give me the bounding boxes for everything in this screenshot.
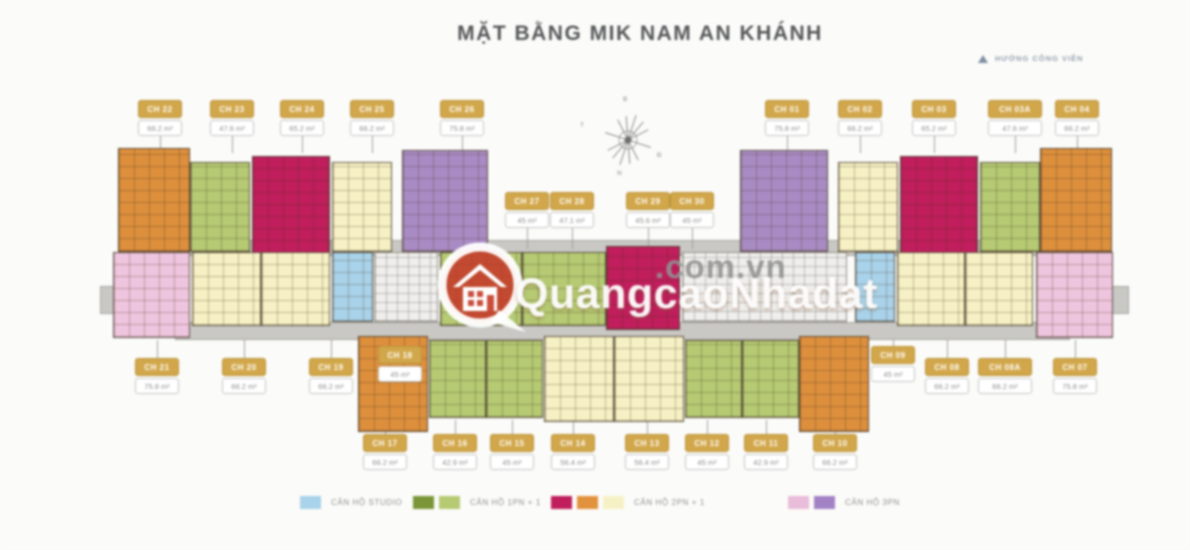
- leader-line: [572, 228, 573, 249]
- unit-ch01: [740, 150, 828, 252]
- unit-ch21: [113, 252, 190, 338]
- unit-id-tag: CH 14: [551, 434, 595, 452]
- leader-line: [512, 420, 513, 434]
- unit-area-value: 66.2 m²: [978, 378, 1032, 394]
- unit-area-value: 66.2 m²: [309, 378, 353, 394]
- unit-area-value: 65.2 m²: [280, 120, 324, 136]
- unit-area-value: 75.8 m²: [135, 378, 179, 394]
- unit-label-ch-12: CH 1245 m²: [685, 434, 729, 470]
- unit-ch15: [486, 340, 543, 418]
- unit-id-tag: CH 19: [309, 358, 353, 376]
- unit-label-ch-22: CH 2266.2 m²: [138, 100, 182, 136]
- unit-id-tag: CH 02: [838, 100, 882, 118]
- unit-label-ch-01: CH 0175.8 m²: [765, 100, 809, 136]
- unit-area-value: 66.2 m²: [1055, 120, 1099, 136]
- unit-ch10: [799, 336, 869, 432]
- legend-item-2: CĂN HỘ 1PN + 1: [413, 496, 541, 509]
- unit-id-tag: CH 16: [433, 434, 477, 452]
- unit-label-ch-07: CH 0775.8 m²: [1053, 358, 1097, 394]
- unit-label-ch-02: CH 0266.2 m²: [838, 100, 882, 136]
- unit-area-value: 47.6 m²: [210, 120, 254, 136]
- leader-line: [1005, 340, 1006, 358]
- unit-label-ch-28: CH 2847.1 m²: [550, 192, 594, 228]
- unit-area-value: 45 m²: [685, 454, 729, 470]
- unit-area-value: 45 m²: [871, 366, 915, 382]
- unit-area-value: 66.2 m²: [925, 378, 969, 394]
- unit-id-tag: CH 08: [925, 358, 969, 376]
- leader-line: [934, 136, 935, 153]
- unit-area-value: 66.2 m²: [838, 120, 882, 136]
- leader-line: [1075, 340, 1076, 358]
- legend-label: CĂN HỘ STUDIO: [331, 498, 402, 507]
- unit-area-value: 66.2 m²: [350, 120, 394, 136]
- leader-line: [573, 420, 574, 434]
- unit-label-ch-03a: CH 03A47.6 m²: [988, 100, 1042, 136]
- unit-id-tag: CH 29: [626, 192, 670, 210]
- unit-id-tag: CH 09: [871, 346, 915, 364]
- unit-label-ch-27: CH 2745 m²: [505, 192, 549, 228]
- unit-label-ch-04: CH 0466.2 m²: [1055, 100, 1099, 136]
- compass-west-label: T: [580, 122, 584, 129]
- unit-id-tag: CH 03A: [988, 100, 1042, 118]
- unit-ch18-studio: [332, 252, 373, 322]
- unit-label-ch-16: CH 1642.9 m²: [433, 434, 477, 470]
- unit-ch16: [429, 340, 486, 418]
- unit-ch08a: [965, 252, 1033, 326]
- legend-label: CĂN HỘ 3PN: [845, 498, 900, 507]
- unit-id-tag: CH 04: [1055, 100, 1099, 118]
- unit-id-tag: CH 21: [135, 358, 179, 376]
- unit-label-ch-26: CH 2675.8 m²: [440, 100, 484, 136]
- unit-label-ch-18: CH 1845 m²: [378, 346, 422, 382]
- unit-id-tag: CH 22: [138, 100, 182, 118]
- unit-ch23: [190, 162, 250, 252]
- leader-line: [860, 136, 861, 153]
- unit-area-value: 75.8 m²: [1053, 378, 1097, 394]
- unit-area-value: 45 m²: [490, 454, 534, 470]
- legend-swatch: [551, 496, 572, 509]
- floorplan-canvas: MẶT BẰNG MIK NAM AN KHÁNH HƯỚNG CÔNG VIÊ…: [0, 0, 1190, 550]
- unit-label-ch-15: CH 1545 m²: [490, 434, 534, 470]
- unit-id-tag: CH 08A: [978, 358, 1032, 376]
- leader-line: [947, 340, 948, 358]
- unit-area-value: 75.8 m²: [440, 120, 484, 136]
- unit-label-ch-09: CH 0945 m²: [871, 346, 915, 382]
- unit-id-tag: CH 10: [813, 434, 857, 452]
- unit-label-ch-08: CH 0866.2 m²: [925, 358, 969, 394]
- legend-swatch: [814, 496, 835, 509]
- unit-ch02: [838, 162, 898, 252]
- unit-area-value: 45.6 m²: [626, 212, 670, 228]
- unit-id-tag: CH 15: [490, 434, 534, 452]
- unit-ch14: [544, 336, 614, 422]
- unit-area-value: 65.2 m²: [912, 120, 956, 136]
- unit-ch03: [900, 156, 978, 254]
- unit-id-tag: CH 07: [1053, 358, 1097, 376]
- unit-label-ch-10: CH 1066.2 m²: [813, 434, 857, 470]
- legend-item-1: CĂN HỘ STUDIO: [300, 496, 402, 509]
- leader-line: [302, 136, 303, 153]
- leader-line: [455, 420, 456, 434]
- compass-south-label: N: [617, 170, 622, 177]
- unit-label-ch-21: CH 2175.8 m²: [135, 358, 179, 394]
- unit-ch25: [332, 162, 392, 252]
- unit-id-tag: CH 26: [440, 100, 484, 118]
- legend-label: CĂN HỘ 1PN + 1: [470, 498, 541, 507]
- unit-id-tag: CH 20: [222, 358, 266, 376]
- unit-id-tag: CH 03: [912, 100, 956, 118]
- unit-area-value: 42.9 m²: [744, 454, 788, 470]
- unit-area-value: 66.2 m²: [138, 120, 182, 136]
- unit-ch11: [742, 340, 799, 418]
- unit-id-tag: CH 18: [378, 346, 422, 364]
- unit-id-tag: CH 17: [363, 434, 407, 452]
- unit-id-tag: CH 24: [280, 100, 324, 118]
- unit-area-value: 42.9 m²: [433, 454, 477, 470]
- unit-area-value: 56.4 m²: [625, 454, 669, 470]
- unit-ch19: [261, 252, 330, 326]
- unit-label-ch-20: CH 2066.2 m²: [222, 358, 266, 394]
- park-direction-note: HƯỚNG CÔNG VIÊN: [978, 54, 1083, 63]
- unit-label-ch-30: CH 3045 m²: [670, 192, 714, 228]
- leader-line: [372, 136, 373, 153]
- unit-label-ch-14: CH 1456.4 m²: [551, 434, 595, 470]
- leader-line: [1015, 136, 1016, 153]
- legend-swatch: [413, 496, 434, 509]
- legend-item-3: CĂN HỘ 2PN + 1: [551, 496, 705, 509]
- park-direction-triangle-icon: [978, 55, 988, 63]
- unit-id-tag: CH 12: [685, 434, 729, 452]
- unit-area-value: 66.2 m²: [222, 378, 266, 394]
- unit-id-tag: CH 25: [350, 100, 394, 118]
- unit-label-ch-08a: CH 08A66.2 m²: [978, 358, 1032, 394]
- stair-core-left: [374, 252, 438, 322]
- unit-label-ch-13: CH 1356.4 m²: [625, 434, 669, 470]
- unit-ch26: [402, 150, 488, 252]
- leader-line: [157, 340, 158, 358]
- unit-ch07: [1036, 252, 1113, 338]
- leader-line: [692, 228, 693, 249]
- unit-ch20: [192, 252, 261, 326]
- leader-line: [766, 420, 767, 434]
- unit-ch08: [897, 252, 965, 326]
- legend-item-4: CĂN HỘ 3PN: [788, 496, 900, 509]
- unit-label-ch-11: CH 1142.9 m²: [744, 434, 788, 470]
- unit-label-ch-03: CH 0365.2 m²: [912, 100, 956, 136]
- balcony-tab-right: [1112, 286, 1129, 314]
- unit-id-tag: CH 30: [670, 192, 714, 210]
- leader-line: [244, 340, 245, 358]
- unit-ch24: [252, 156, 330, 254]
- page-title: MẶT BẰNG MIK NAM AN KHÁNH: [0, 22, 1190, 46]
- legend-swatch: [300, 496, 321, 509]
- watermark-brand: QuangcaoNhadat: [515, 270, 878, 319]
- leader-line: [647, 420, 648, 434]
- unit-id-tag: CH 13: [625, 434, 669, 452]
- unit-ch22: [118, 148, 190, 252]
- unit-id-tag: CH 28: [550, 192, 594, 210]
- unit-area-value: 66.2 m²: [813, 454, 857, 470]
- unit-ch13: [614, 336, 684, 422]
- leader-line: [331, 340, 332, 358]
- unit-label-ch-19: CH 1966.2 m²: [309, 358, 353, 394]
- park-direction-label: HƯỚNG CÔNG VIÊN: [995, 54, 1083, 63]
- unit-label-ch-17: CH 1766.2 m²: [363, 434, 407, 470]
- unit-ch12: [685, 340, 742, 418]
- unit-id-tag: CH 01: [765, 100, 809, 118]
- compass-north-label: B: [623, 96, 627, 103]
- legend-swatch: [577, 496, 598, 509]
- legend-swatch: [788, 496, 809, 509]
- unit-ch03a: [980, 162, 1040, 252]
- unit-area-value: 45 m²: [378, 366, 422, 382]
- compass-rose: B Đ N T: [592, 100, 664, 176]
- legend-swatch: [439, 496, 460, 509]
- unit-label-ch-23: CH 2347.6 m²: [210, 100, 254, 136]
- unit-id-tag: CH 27: [505, 192, 549, 210]
- leader-line: [232, 136, 233, 153]
- unit-label-ch-29: CH 2945.6 m²: [626, 192, 670, 228]
- legend-swatch: [603, 496, 624, 509]
- unit-area-value: 47.1 m²: [550, 212, 594, 228]
- unit-area-value: 45 m²: [505, 212, 549, 228]
- unit-id-tag: CH 11: [744, 434, 788, 452]
- unit-label-ch-24: CH 2465.2 m²: [280, 100, 324, 136]
- unit-ch04: [1040, 148, 1112, 252]
- leader-line: [707, 420, 708, 434]
- unit-id-tag: CH 23: [210, 100, 254, 118]
- unit-area-value: 66.2 m²: [363, 454, 407, 470]
- unit-area-value: 47.6 m²: [988, 120, 1042, 136]
- unit-area-value: 56.4 m²: [551, 454, 595, 470]
- compass-star-icon: [592, 100, 664, 176]
- unit-area-value: 45 m²: [670, 212, 714, 228]
- unit-label-ch-25: CH 2566.2 m²: [350, 100, 394, 136]
- unit-area-value: 75.8 m²: [765, 120, 809, 136]
- compass-east-label: Đ: [657, 152, 662, 159]
- legend-label: CĂN HỘ 2PN + 1: [634, 498, 705, 507]
